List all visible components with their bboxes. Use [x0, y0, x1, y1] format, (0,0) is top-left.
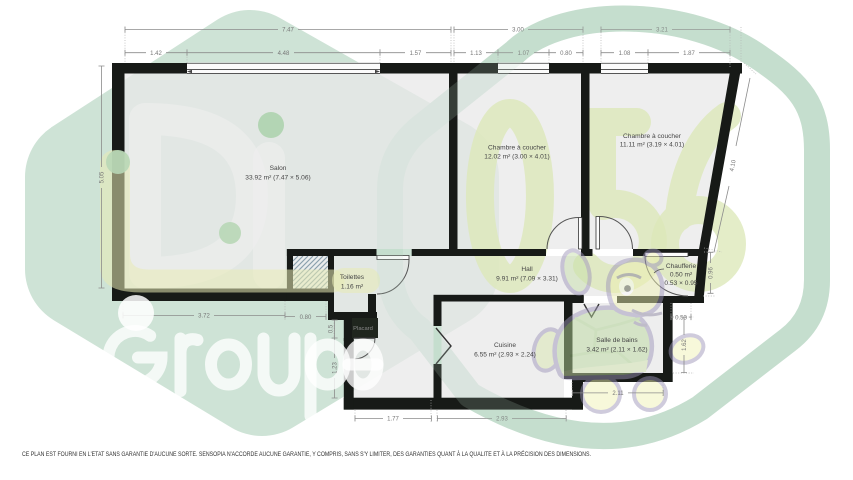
svg-text:7.47: 7.47	[282, 28, 294, 34]
svg-text:1.13: 1.13	[470, 51, 482, 57]
svg-text:0.5: 0.5	[329, 324, 335, 333]
svg-text:33.92 m² (7.47 × 5.06): 33.92 m² (7.47 × 5.06)	[245, 175, 310, 182]
svg-text:2.11: 2.11	[612, 391, 624, 397]
svg-text:1.87: 1.87	[683, 51, 695, 57]
svg-text:Hall: Hall	[521, 266, 533, 273]
svg-text:Salon: Salon	[270, 165, 287, 172]
svg-text:0.96: 0.96	[709, 267, 715, 279]
svg-text:0.50 m²: 0.50 m²	[670, 272, 693, 279]
svg-text:3.42 m² (2.11 × 1.62): 3.42 m² (2.11 × 1.62)	[586, 347, 647, 354]
svg-text:1.42: 1.42	[150, 51, 162, 57]
svg-text:Salle de bains: Salle de bains	[596, 337, 638, 344]
svg-text:Toilettes: Toilettes	[340, 274, 365, 281]
svg-text:0.53 × 0.95: 0.53 × 0.95	[664, 280, 698, 287]
svg-text:1.62: 1.62	[682, 339, 688, 351]
svg-text:Chambre à coucher: Chambre à coucher	[488, 145, 547, 152]
svg-text:6.55 m² (2.93 × 2.24): 6.55 m² (2.93 × 2.24)	[474, 352, 536, 359]
svg-text:0.53: 0.53	[675, 315, 687, 321]
svg-text:Cuisine: Cuisine	[494, 342, 516, 349]
svg-text:1.08: 1.08	[619, 51, 631, 57]
svg-text:CE PLAN EST FOURNI EN L'ETAT S: CE PLAN EST FOURNI EN L'ETAT SANS GARANT…	[22, 451, 591, 458]
svg-text:Chaufferie: Chaufferie	[666, 263, 697, 270]
svg-text:1.77: 1.77	[387, 417, 399, 423]
svg-text:0.80: 0.80	[560, 51, 572, 57]
svg-text:11.11 m² (3.19 × 4.01): 11.11 m² (3.19 × 4.01)	[620, 142, 684, 149]
svg-text:3.72: 3.72	[198, 314, 210, 320]
svg-text:1.57: 1.57	[410, 51, 422, 57]
svg-text:0.80: 0.80	[300, 315, 312, 321]
svg-text:12.02 m² (3.00 × 4.01): 12.02 m² (3.00 × 4.01)	[484, 154, 549, 161]
svg-text:Placard: Placard	[353, 326, 373, 332]
svg-text:4.48: 4.48	[278, 51, 290, 57]
svg-text:Chambre à coucher: Chambre à coucher	[623, 133, 682, 140]
svg-text:5.05: 5.05	[100, 171, 106, 183]
svg-text:9.91 m² (7.09 × 3.31): 9.91 m² (7.09 × 3.31)	[496, 276, 558, 283]
svg-text:1.16 m²: 1.16 m²	[341, 284, 364, 291]
